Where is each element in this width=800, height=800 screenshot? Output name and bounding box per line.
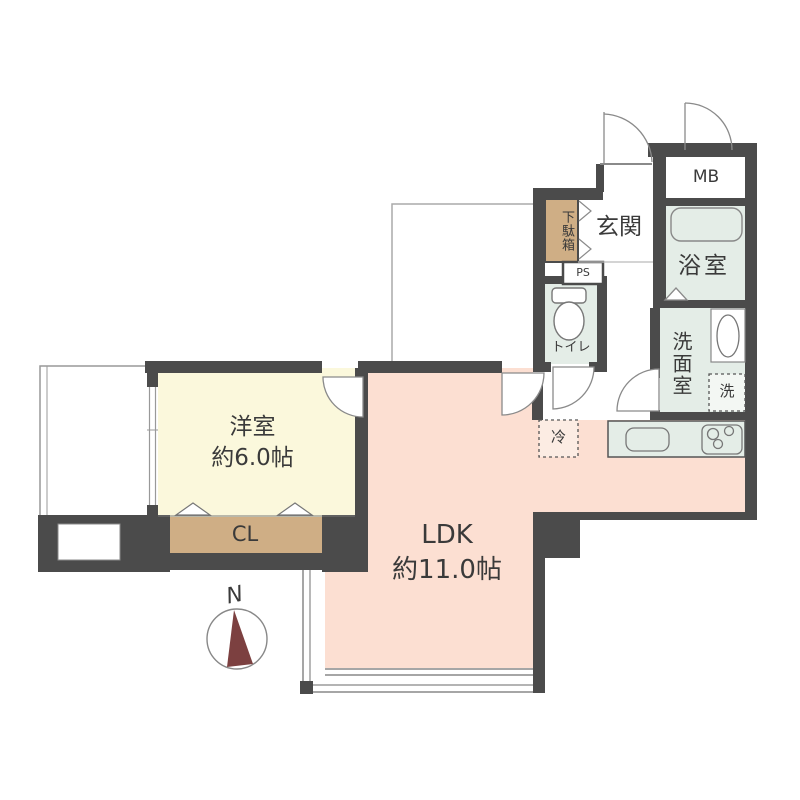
toilet-icon <box>552 288 586 340</box>
floor-plan: MB 玄関 下駄箱 PS 浴室 トイレ 洗面室 洗 冷 洋室約6.0帖 CL L… <box>0 0 800 800</box>
washroom-label: 洗面室 <box>666 316 694 412</box>
terrace-rail-post <box>300 681 313 694</box>
kitchen-counter <box>608 421 745 457</box>
entrance-label: 玄関 <box>583 213 655 243</box>
void-inset <box>58 524 120 560</box>
sink-icon <box>711 309 745 362</box>
toilet-label: トイレ <box>543 340 599 357</box>
western-room-label: 洋室約6.0帖 <box>165 412 340 474</box>
closet-label: CL <box>168 521 322 548</box>
western-left-window <box>147 387 158 505</box>
refrigerator-label: 冷 <box>539 428 578 448</box>
pipe-space-label: PS <box>563 266 603 280</box>
porch-outline <box>392 204 533 361</box>
meter-box-label: MB <box>667 166 745 188</box>
ldk-label: LDK約11.0帖 <box>352 518 542 588</box>
bathroom-label: 浴室 <box>663 252 745 282</box>
shoe-cabinet-label: 下駄箱 <box>550 202 574 260</box>
compass <box>207 609 267 669</box>
balcony-left <box>40 366 152 516</box>
washer-label: 洗 <box>709 382 745 402</box>
